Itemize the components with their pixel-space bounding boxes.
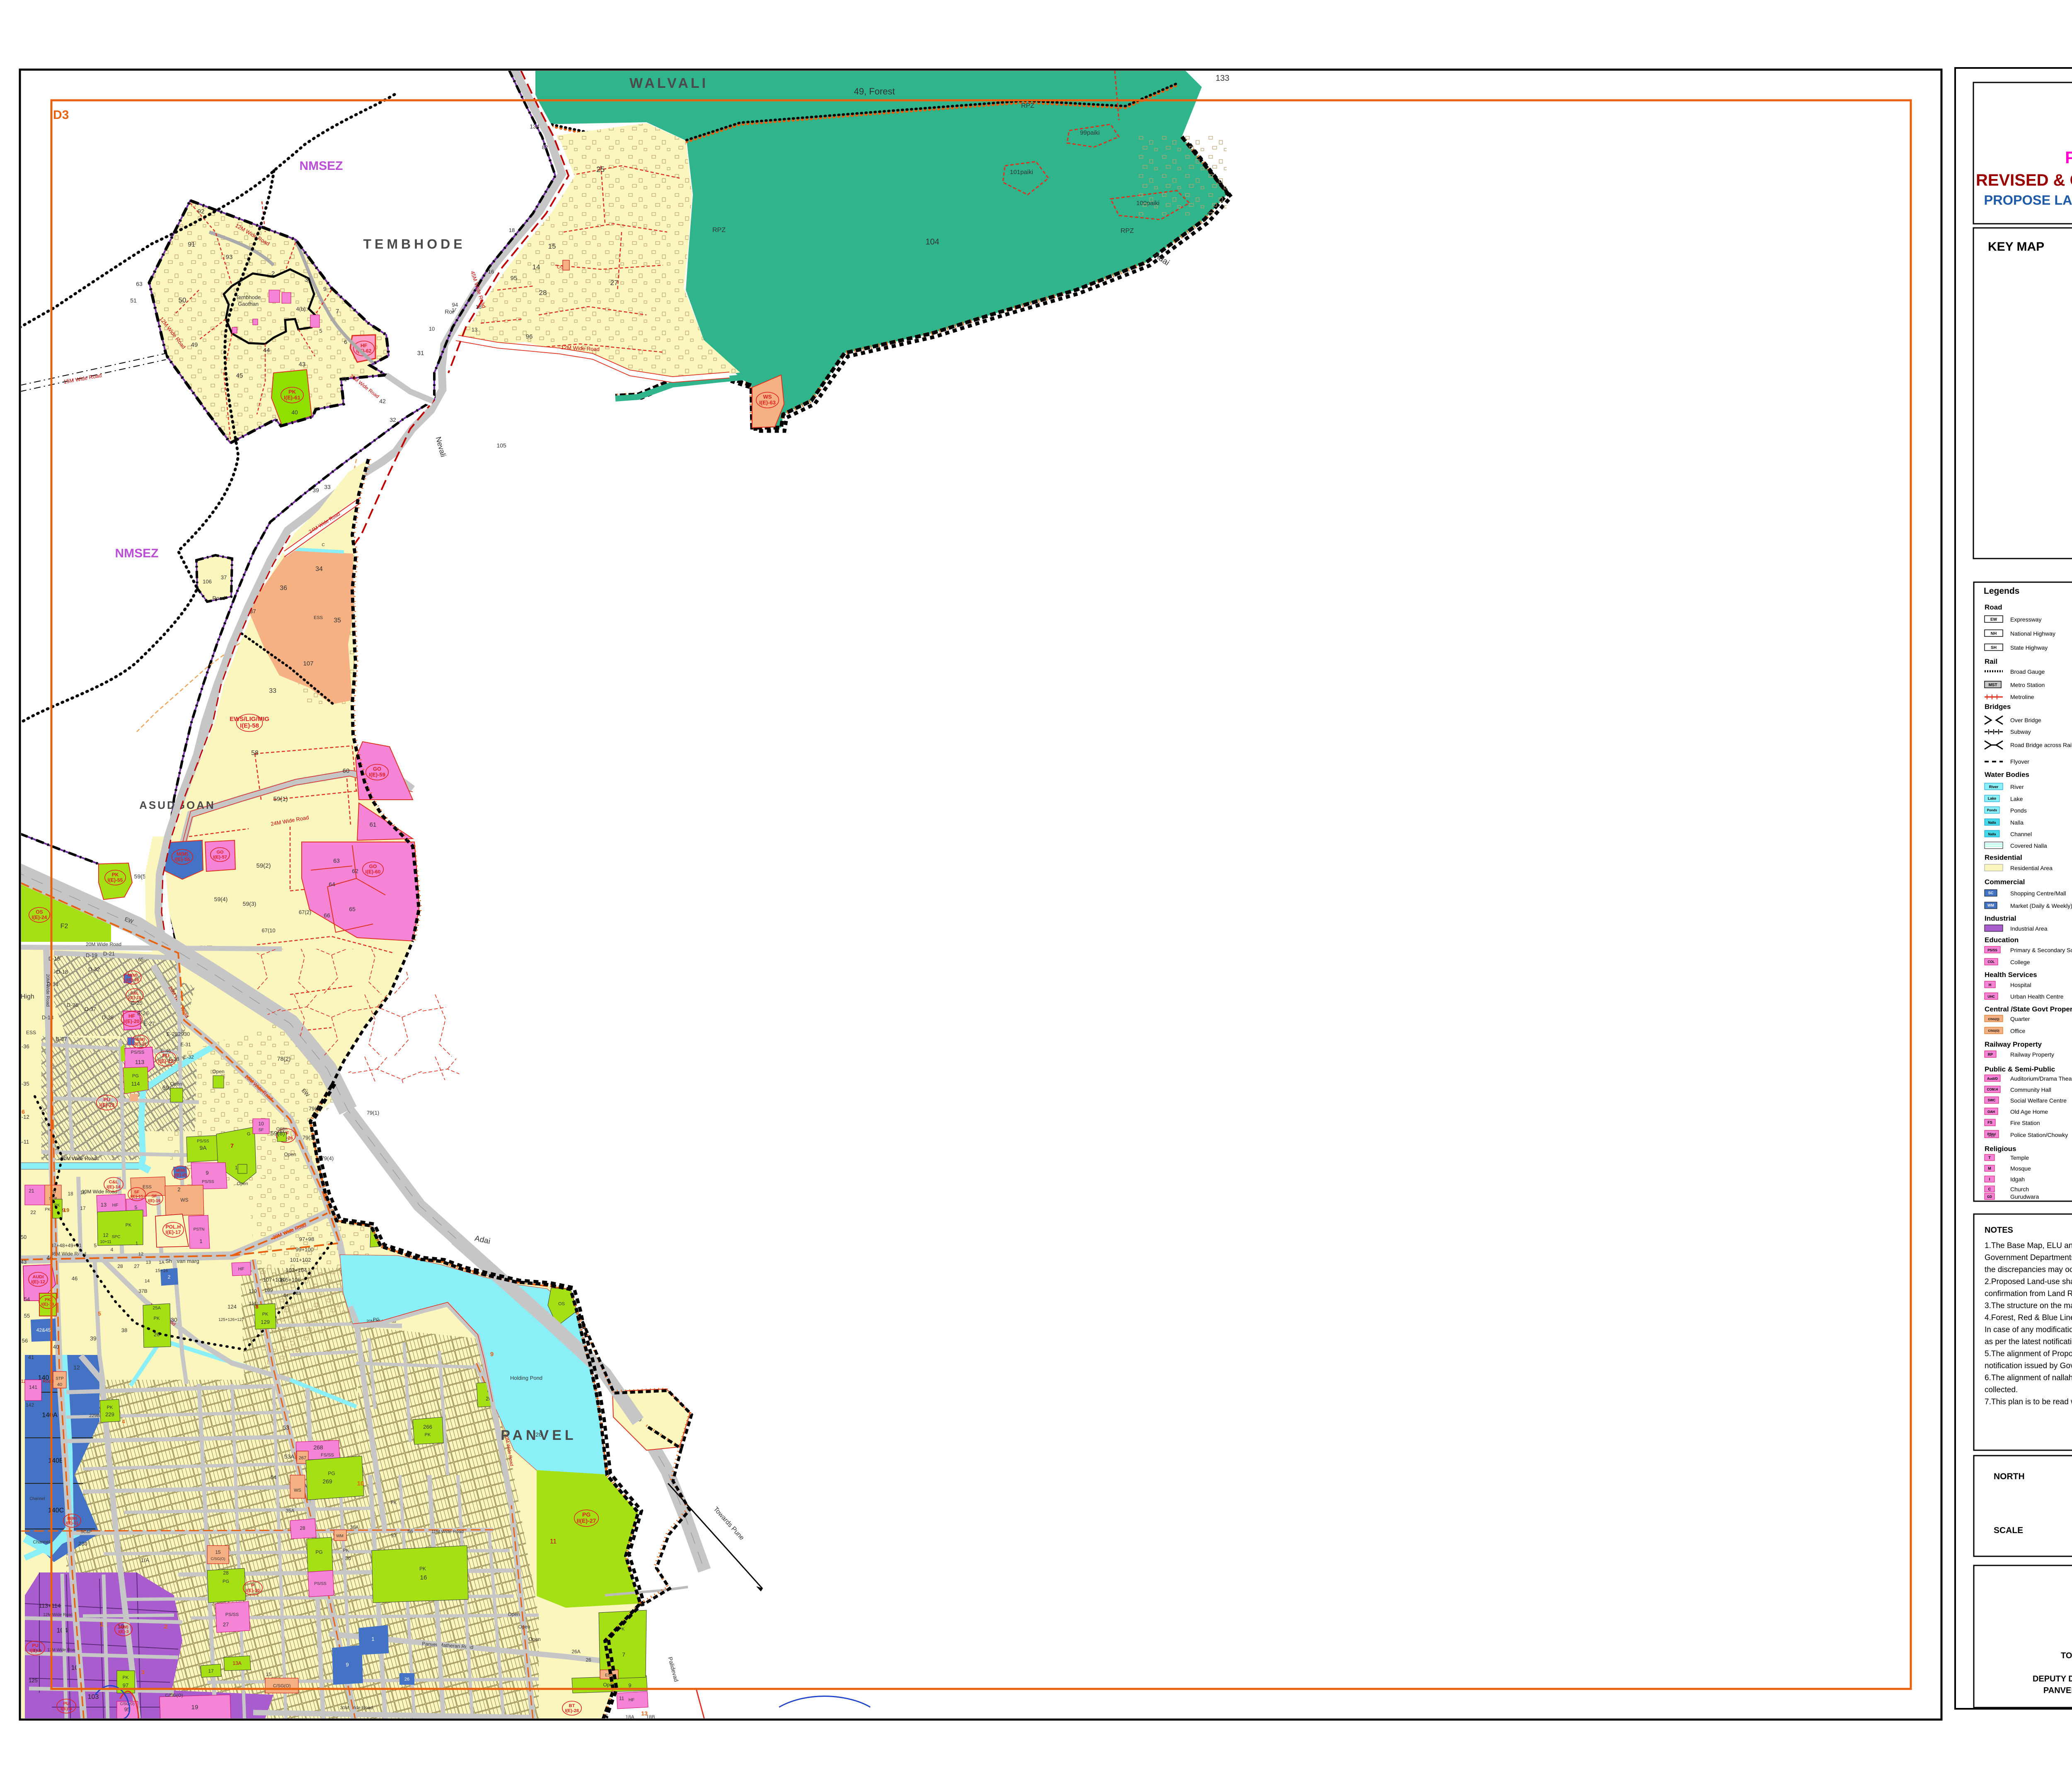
svg-text:I(E)-21: I(E)-21: [134, 1042, 147, 1047]
svg-text:60: 60: [343, 767, 350, 774]
svg-text:WM: WM: [1987, 903, 1994, 907]
svg-text:I(E)-11: I(E)-11: [66, 1521, 78, 1526]
svg-text:13A: 13A: [232, 1660, 241, 1666]
svg-text:268: 268: [313, 1444, 323, 1451]
svg-text:Open: Open: [170, 1081, 182, 1087]
svg-text:Ponds: Ponds: [1987, 808, 1997, 812]
svg-text:1A: 1A: [159, 1260, 165, 1265]
svg-text:Industrial: Industrial: [1985, 914, 2016, 922]
svg-text:57: 57: [391, 1533, 397, 1538]
svg-text:D-21: D-21: [103, 951, 115, 957]
svg-text:103: 103: [88, 1693, 99, 1700]
svg-text:ESS: ESS: [314, 615, 323, 620]
svg-text:53: 53: [283, 1424, 289, 1431]
svg-text:SWC: SWC: [1988, 1098, 1996, 1102]
svg-text:5: 5: [94, 1243, 97, 1248]
svg-text:confirmation from Land Record: confirmation from Land Record or compete…: [1985, 1289, 2072, 1298]
svg-text:103+104: 103+104: [286, 1267, 307, 1273]
svg-text:C: C: [1988, 1187, 1991, 1191]
svg-text:I(E)-23: I(E)-23: [99, 1102, 115, 1108]
svg-text:Religious: Religious: [1985, 1145, 2016, 1153]
svg-text:1/A: 1/A: [140, 1557, 150, 1563]
svg-text:Expressway: Expressway: [2010, 616, 2041, 623]
svg-text:18: 18: [68, 1191, 73, 1197]
svg-text:2: 2: [168, 1274, 171, 1280]
svg-text:NORTH: NORTH: [1994, 1472, 2025, 1481]
svg-text:7: 7: [622, 1651, 625, 1658]
svg-text:27: 27: [134, 1263, 140, 1269]
svg-text:FS/SS: FS/SS: [321, 1453, 334, 1458]
svg-text:PU: PU: [162, 1053, 169, 1059]
svg-text:Open: Open: [518, 1624, 530, 1630]
svg-text:49, Forest: 49, Forest: [854, 86, 895, 97]
svg-text:PK: PK: [123, 1675, 129, 1680]
svg-text:TEMBHODE: TEMBHODE: [363, 237, 465, 252]
svg-text:3.The structure on the map doe: 3.The structure on the map does not conf…: [1985, 1301, 2072, 1310]
svg-text:Open: Open: [212, 1069, 224, 1074]
svg-text:9: 9: [490, 1351, 494, 1358]
svg-text:PK: PK: [391, 1500, 397, 1505]
svg-text:37: 37: [221, 574, 227, 581]
svg-text:46: 46: [72, 1275, 77, 1282]
svg-text:36: 36: [345, 1555, 351, 1561]
svg-text:STP: STP: [56, 1376, 64, 1381]
svg-text:230: 230: [78, 1541, 87, 1547]
svg-text:P.Ch: P.Ch: [1989, 1135, 1995, 1138]
svg-text:36A: 36A: [350, 1524, 358, 1530]
svg-text:10: 10: [357, 1480, 364, 1487]
svg-text:43: 43: [299, 361, 306, 368]
svg-text:18: 18: [509, 227, 515, 233]
svg-text:38: 38: [121, 1327, 127, 1333]
svg-text:GD: GD: [1987, 1195, 1992, 1199]
svg-text:I(E)-20: I(E)-20: [124, 1018, 140, 1024]
svg-text:27: 27: [223, 1621, 229, 1628]
svg-text:84: 84: [283, 1293, 288, 1298]
svg-text:PK: PK: [107, 1405, 113, 1410]
svg-text:40: 40: [53, 1344, 59, 1350]
svg-text:15: 15: [548, 242, 556, 250]
svg-text:C/SG(O): C/SG(O): [1988, 1030, 1999, 1033]
svg-text:99+100: 99+100: [295, 1246, 314, 1253]
svg-text:141: 141: [29, 1384, 37, 1390]
svg-text:134: 134: [530, 123, 540, 130]
svg-text:I(E)-59: I(E)-59: [369, 772, 385, 778]
svg-text:9A: 9A: [199, 1144, 207, 1151]
svg-text:Commercial: Commercial: [1985, 878, 2025, 886]
svg-text:Legends: Legends: [1984, 586, 2019, 596]
svg-text:5: 5: [319, 328, 322, 334]
svg-text:22: 22: [30, 1209, 36, 1215]
svg-text:I(E)-25: I(E)-25: [174, 1173, 187, 1178]
svg-text:Railway Property: Railway Property: [2010, 1051, 2054, 1058]
svg-text:101paiki: 101paiki: [1010, 169, 1033, 176]
svg-text:NH: NH: [1991, 631, 1997, 636]
svg-text:3: 3: [305, 276, 308, 283]
svg-text:41: 41: [28, 1354, 34, 1360]
svg-text:78(2): 78(2): [277, 1055, 291, 1062]
svg-text:PS/SS: PS/SS: [314, 1582, 327, 1586]
svg-text:11: 11: [619, 1696, 625, 1701]
svg-text:51: 51: [130, 297, 137, 304]
svg-text:M(M): M(M): [177, 851, 188, 857]
svg-text:M(M): M(M): [67, 1517, 77, 1521]
svg-text:39: 39: [90, 1335, 97, 1342]
svg-text:State Highway: State Highway: [2010, 644, 2048, 651]
svg-text:C/SG(O): C/SG(O): [273, 1684, 291, 1688]
svg-text:15: 15: [215, 1549, 221, 1555]
svg-text:AUDI: AUDI: [33, 1275, 44, 1280]
svg-text:Temple: Temple: [2010, 1154, 2029, 1161]
svg-text:HF: HF: [361, 343, 367, 348]
svg-text:WALVALI: WALVALI: [629, 75, 708, 91]
svg-text:92: 92: [198, 208, 205, 215]
svg-text:PG: PG: [315, 1549, 322, 1555]
svg-text:93: 93: [226, 254, 233, 261]
svg-text:Hospital: Hospital: [2010, 982, 2031, 988]
svg-text:30M Wide Road: 30M Wide Road: [340, 1705, 373, 1710]
svg-text:45: 45: [236, 372, 243, 379]
svg-text:NMSEZ: NMSEZ: [300, 159, 343, 173]
svg-text:Road Bridge across Rail: Road Bridge across Rail: [2010, 742, 2072, 748]
svg-text:114: 114: [131, 1081, 140, 1087]
svg-text:33: 33: [269, 687, 276, 694]
svg-text:14: 14: [533, 263, 540, 271]
svg-text:79(1): 79(1): [367, 1110, 379, 1116]
svg-text:D-18: D-18: [56, 969, 68, 975]
svg-text:229: 229: [105, 1411, 114, 1417]
svg-text:9: 9: [628, 1682, 631, 1688]
svg-text:Subway: Subway: [2010, 728, 2031, 735]
svg-text:Rail: Rail: [1985, 658, 1997, 665]
svg-text:UHC: UHC: [1987, 995, 1995, 999]
svg-text:99paiki: 99paiki: [1080, 129, 1100, 136]
svg-text:Tembhode: Tembhode: [236, 294, 261, 300]
svg-text:35: 35: [334, 617, 341, 624]
svg-text:GO: GO: [216, 850, 224, 855]
svg-text:105: 105: [496, 442, 506, 449]
svg-text:PK: PK: [425, 1432, 431, 1437]
svg-text:PS/SS: PS/SS: [202, 1180, 214, 1184]
svg-text:27: 27: [610, 279, 618, 287]
svg-text:SF: SF: [152, 1194, 157, 1199]
svg-text:28: 28: [223, 1570, 229, 1576]
svg-text:C/SG(Q): C/SG(Q): [1988, 1018, 1999, 1021]
svg-text:Flyover: Flyover: [2010, 758, 2029, 765]
svg-text:PK: PK: [262, 1312, 269, 1317]
svg-text:Channel: Channel: [33, 1540, 50, 1545]
svg-text:Education: Education: [1985, 936, 2019, 944]
svg-text:39: 39: [312, 487, 319, 493]
svg-text:2.Proposed Land-use shall prev: 2.Proposed Land-use shall prevail irresp…: [1985, 1277, 2072, 1286]
svg-text:17: 17: [80, 1205, 86, 1211]
svg-text:111: 111: [249, 1301, 257, 1306]
svg-text:Police Station/Chowky: Police Station/Chowky: [2010, 1132, 2068, 1138]
svg-text:Social Welfare Centre: Social Welfare Centre: [2010, 1097, 2067, 1104]
svg-text:I(E)-2: I(E)-2: [29, 1648, 41, 1653]
svg-text:I(E)-63: I(E)-63: [759, 399, 776, 406]
svg-text:97+98: 97+98: [299, 1236, 315, 1242]
svg-text:PROPOSE LAND USE MAP PUBLISHED: PROPOSE LAND USE MAP PUBLISHED U/s.26(1)…: [1984, 193, 2072, 208]
svg-text:D-15: D-15: [48, 955, 60, 962]
svg-text:19: 19: [191, 1704, 198, 1711]
svg-text:13: 13: [146, 1260, 151, 1265]
svg-text:Metroline: Metroline: [2010, 694, 2034, 700]
svg-text:26A: 26A: [571, 1649, 580, 1655]
svg-text:91: 91: [188, 241, 195, 248]
svg-text:I(E)-3: I(E)-3: [119, 1630, 129, 1634]
svg-text:M: M: [1988, 1166, 1991, 1171]
svg-text:PK: PK: [419, 1566, 426, 1572]
svg-text:1: 1: [199, 1238, 202, 1244]
svg-text:I: I: [1989, 1177, 1990, 1181]
svg-text:59(8): 59(8): [270, 1130, 285, 1137]
svg-text:DEPUTY DIRECTOR OF TOWN PLANNI: DEPUTY DIRECTOR OF TOWN PLANNING: [2033, 1674, 2072, 1684]
svg-text:M(M): M(M): [119, 1625, 128, 1630]
svg-text:E-32: E-32: [183, 1054, 194, 1060]
svg-text:PU: PU: [63, 1701, 69, 1706]
svg-text:Auditorium/Drama Theatre: Auditorium/Drama Theatre: [2010, 1075, 2072, 1082]
svg-text:Shravan marg: Shravan marg: [165, 1258, 199, 1264]
svg-text:96: 96: [526, 333, 533, 340]
svg-text:5: 5: [98, 1310, 101, 1317]
svg-text:12: 12: [103, 1232, 109, 1238]
svg-text:H: H: [1989, 983, 1992, 987]
svg-text:PK: PK: [288, 389, 296, 395]
svg-text:9: 9: [346, 1662, 349, 1668]
svg-text:Government Departments / Stake: Government Departments / Stakeholders an…: [1985, 1253, 2072, 1262]
svg-text:I(E)-24: I(E)-24: [32, 914, 47, 920]
svg-text:Idgah: Idgah: [2010, 1176, 2025, 1183]
svg-text:National Highway: National Highway: [2010, 630, 2055, 637]
svg-text:SF: SF: [134, 1190, 140, 1195]
svg-text:PK: PK: [112, 872, 119, 878]
svg-text:9: 9: [323, 285, 327, 292]
svg-text:10: 10: [258, 1121, 264, 1127]
svg-text:59(4): 59(4): [214, 896, 228, 902]
svg-text:20M Wide Road: 20M Wide Road: [45, 974, 50, 1007]
svg-text:D-37: D-37: [85, 1006, 96, 1012]
svg-text:WS: WS: [763, 394, 772, 400]
svg-text:SCALE: SCALE: [1994, 1526, 2023, 1535]
svg-text:59(2): 59(2): [256, 862, 271, 869]
svg-text:14: 14: [145, 1279, 150, 1284]
svg-text:2: 2: [271, 270, 275, 277]
svg-text:3: 3: [141, 1669, 144, 1675]
svg-text:82: 82: [542, 144, 548, 150]
svg-text:D-32: D-32: [88, 966, 100, 972]
svg-text:WS: WS: [294, 1488, 301, 1493]
svg-text:25A: 25A: [152, 1306, 161, 1311]
svg-text:D-38: D-38: [102, 1014, 114, 1021]
svg-text:G: G: [247, 1132, 251, 1137]
svg-text:113+114: 113+114: [39, 1602, 61, 1609]
svg-text:125: 125: [29, 1677, 38, 1684]
svg-text:COL: COL: [1988, 960, 1995, 964]
svg-text:OS: OS: [36, 909, 43, 915]
svg-text:Holding Pond: Holding Pond: [510, 1375, 542, 1381]
svg-text:1: 1: [136, 1241, 138, 1246]
svg-text:Public & Semi-Public: Public & Semi-Public: [1985, 1065, 2055, 1073]
svg-text:16: 16: [420, 1574, 427, 1581]
svg-text:Shopping Centre/Mall: Shopping Centre/Mall: [2010, 890, 2066, 897]
svg-text:Lake: Lake: [1988, 796, 1997, 801]
svg-text:50: 50: [21, 1234, 27, 1240]
svg-text:C: C: [322, 543, 324, 547]
svg-text:65: 65: [138, 957, 144, 963]
svg-text:ESS: ESS: [26, 1030, 36, 1035]
svg-text:129: 129: [261, 1319, 270, 1325]
svg-text:2: 2: [177, 1186, 180, 1193]
svg-text:10M Wide Road: 10M Wide Road: [61, 1156, 97, 1161]
svg-text:RP: RP: [1988, 1052, 1993, 1057]
svg-text:40: 40: [57, 1382, 62, 1387]
svg-text:Nalla: Nalla: [1988, 832, 1996, 836]
svg-text:25: 25: [596, 165, 605, 174]
svg-text:7: 7: [336, 308, 339, 315]
svg-text:7: 7: [230, 1142, 234, 1149]
svg-text:M(M): M(M): [176, 1168, 185, 1173]
svg-text:4: 4: [122, 1418, 125, 1425]
svg-text:Open: Open: [284, 1151, 296, 1157]
svg-text:RPZ: RPZ: [1021, 102, 1034, 109]
svg-text:21: 21: [29, 1188, 34, 1194]
svg-text:11M Wide Road: 11M Wide Road: [431, 1529, 464, 1534]
svg-text:101+102: 101+102: [290, 1257, 311, 1263]
svg-text:E-31: E-31: [180, 1042, 191, 1047]
svg-text:Open: Open: [528, 1636, 540, 1642]
svg-text:C&L: C&L: [109, 1180, 119, 1185]
svg-text:28: 28: [300, 1525, 305, 1531]
svg-text:Open: Open: [508, 1611, 520, 1617]
svg-text:133: 133: [1215, 74, 1229, 83]
svg-text:4(b): 4(b): [296, 306, 305, 312]
svg-text:HF: HF: [629, 1698, 635, 1703]
svg-text:18: 18: [476, 304, 482, 310]
svg-text:50: 50: [179, 296, 186, 304]
svg-text:104: 104: [925, 237, 939, 247]
svg-text:Over Bridge: Over Bridge: [2010, 717, 2041, 723]
svg-text:M(M): M(M): [128, 973, 137, 978]
svg-text:95: 95: [511, 275, 518, 282]
svg-text:16: 16: [80, 1190, 86, 1195]
svg-text:58: 58: [251, 750, 259, 757]
svg-text:19: 19: [63, 1207, 69, 1213]
svg-text:1: 1: [371, 1636, 374, 1642]
svg-text:16: 16: [488, 268, 494, 275]
svg-text:40: 40: [291, 409, 298, 416]
svg-text:I(E)-28: I(E)-28: [565, 1708, 579, 1713]
svg-text:79(2): 79(2): [309, 1105, 321, 1112]
svg-text:I(E)-61: I(E)-61: [284, 394, 300, 401]
svg-text:HF: HF: [238, 1267, 244, 1272]
svg-text:SC: SC: [1988, 891, 1994, 895]
svg-text:PSTN: PSTN: [194, 1227, 205, 1232]
svg-text:PS/SS: PS/SS: [225, 1612, 239, 1617]
svg-text:31: 31: [417, 350, 424, 357]
svg-text:River: River: [1989, 785, 1999, 789]
svg-text:Old Age Home: Old Age Home: [2010, 1108, 2048, 1115]
svg-text:FS: FS: [1987, 1120, 1992, 1125]
svg-text:SPC: SPC: [112, 1235, 121, 1239]
svg-text:12: 12: [73, 1364, 80, 1371]
svg-text:Audi/D: Audi/D: [1987, 1077, 1998, 1081]
svg-text:36: 36: [280, 585, 287, 592]
svg-text:D-19: D-19: [86, 952, 97, 958]
svg-text:4: 4: [111, 1247, 114, 1253]
svg-text:PK: PK: [154, 1316, 160, 1321]
svg-text:I(E)-58: I(E)-58: [240, 722, 259, 729]
svg-text:Channel: Channel: [29, 1497, 45, 1501]
svg-text:I(E)-30: I(E)-30: [246, 1588, 260, 1593]
svg-text:PS/SS: PS/SS: [197, 1139, 209, 1144]
svg-text:Road: Road: [212, 595, 225, 601]
svg-text:PS/SS: PS/SS: [131, 1050, 144, 1055]
svg-text:110: 110: [249, 1288, 257, 1294]
svg-text:M(M): M(M): [135, 1038, 145, 1042]
svg-text:the discrepancies may occur.: the discrepancies may occur.: [1985, 1265, 2072, 1274]
svg-text:142: 142: [26, 1402, 34, 1408]
svg-text:64: 64: [329, 881, 335, 888]
svg-text:63: 63: [136, 281, 143, 287]
svg-text:ESS: ESS: [143, 1185, 152, 1190]
svg-text:34: 34: [315, 566, 323, 573]
svg-text:69: 69: [162, 1084, 169, 1091]
svg-text:PK: PK: [45, 1298, 51, 1302]
svg-text:Ponds: Ponds: [2010, 807, 2027, 814]
svg-text:59(1): 59(1): [273, 796, 288, 803]
svg-text:54: 54: [24, 1296, 30, 1302]
svg-text:79(3): 79(3): [303, 1134, 315, 1141]
svg-text:124: 124: [228, 1304, 237, 1310]
svg-text:PS/SS: PS/SS: [1987, 948, 1997, 952]
svg-text:II(E)-27: II(E)-27: [577, 1517, 596, 1524]
svg-text:E-282930: E-282930: [167, 1031, 190, 1037]
svg-text:Covered Nalla: Covered Nalla: [2010, 842, 2047, 849]
svg-text:I(E)-57: I(E)-57: [213, 855, 227, 860]
svg-text:Urban Health Centre: Urban Health Centre: [2010, 993, 2064, 1000]
svg-text:RPZ: RPZ: [1121, 227, 1134, 235]
svg-text:PU: PU: [32, 1643, 38, 1648]
svg-text:67(10: 67(10: [261, 927, 275, 934]
svg-text:42&45: 42&45: [36, 1327, 51, 1333]
svg-text:PG: PG: [223, 1579, 229, 1584]
svg-text:11: 11: [550, 1538, 557, 1545]
svg-text:26: 26: [404, 1677, 409, 1682]
svg-text:Road: Road: [1985, 603, 2002, 611]
svg-text:OAH: OAH: [1987, 1110, 1995, 1114]
svg-text:D-36: D-36: [67, 1002, 78, 1008]
svg-text:65: 65: [349, 906, 356, 912]
svg-text:WM: WM: [336, 1534, 344, 1538]
svg-text:Church: Church: [2010, 1186, 2029, 1193]
svg-text:PG: PG: [132, 1074, 139, 1079]
svg-text:I(E)-12: I(E)-12: [31, 1280, 45, 1284]
svg-text:River: River: [2010, 784, 2024, 790]
svg-text:Gurudwara: Gurudwara: [2010, 1193, 2039, 1200]
svg-text:13: 13: [101, 1202, 107, 1208]
svg-text:P: P: [251, 1583, 254, 1588]
svg-text:17: 17: [208, 1668, 214, 1674]
svg-text:E-46: E-46: [160, 1048, 171, 1054]
svg-text:PANVEL MUNICIPAL CORPORATION: PANVEL MUNICIPAL CORPORATION: [2043, 1686, 2072, 1695]
svg-text:OS: OS: [558, 1301, 565, 1306]
svg-text:2: 2: [164, 1623, 167, 1630]
svg-text:4.Forest, Red & Blue Line,CRZ,: 4.Forest, Red & Blue Line,CRZ, Mangroves…: [1985, 1313, 2072, 1322]
svg-text:109: 109: [264, 1287, 273, 1293]
svg-text:54: 54: [271, 1474, 276, 1480]
svg-text:I(E)-4: I(E)-4: [61, 1706, 72, 1711]
